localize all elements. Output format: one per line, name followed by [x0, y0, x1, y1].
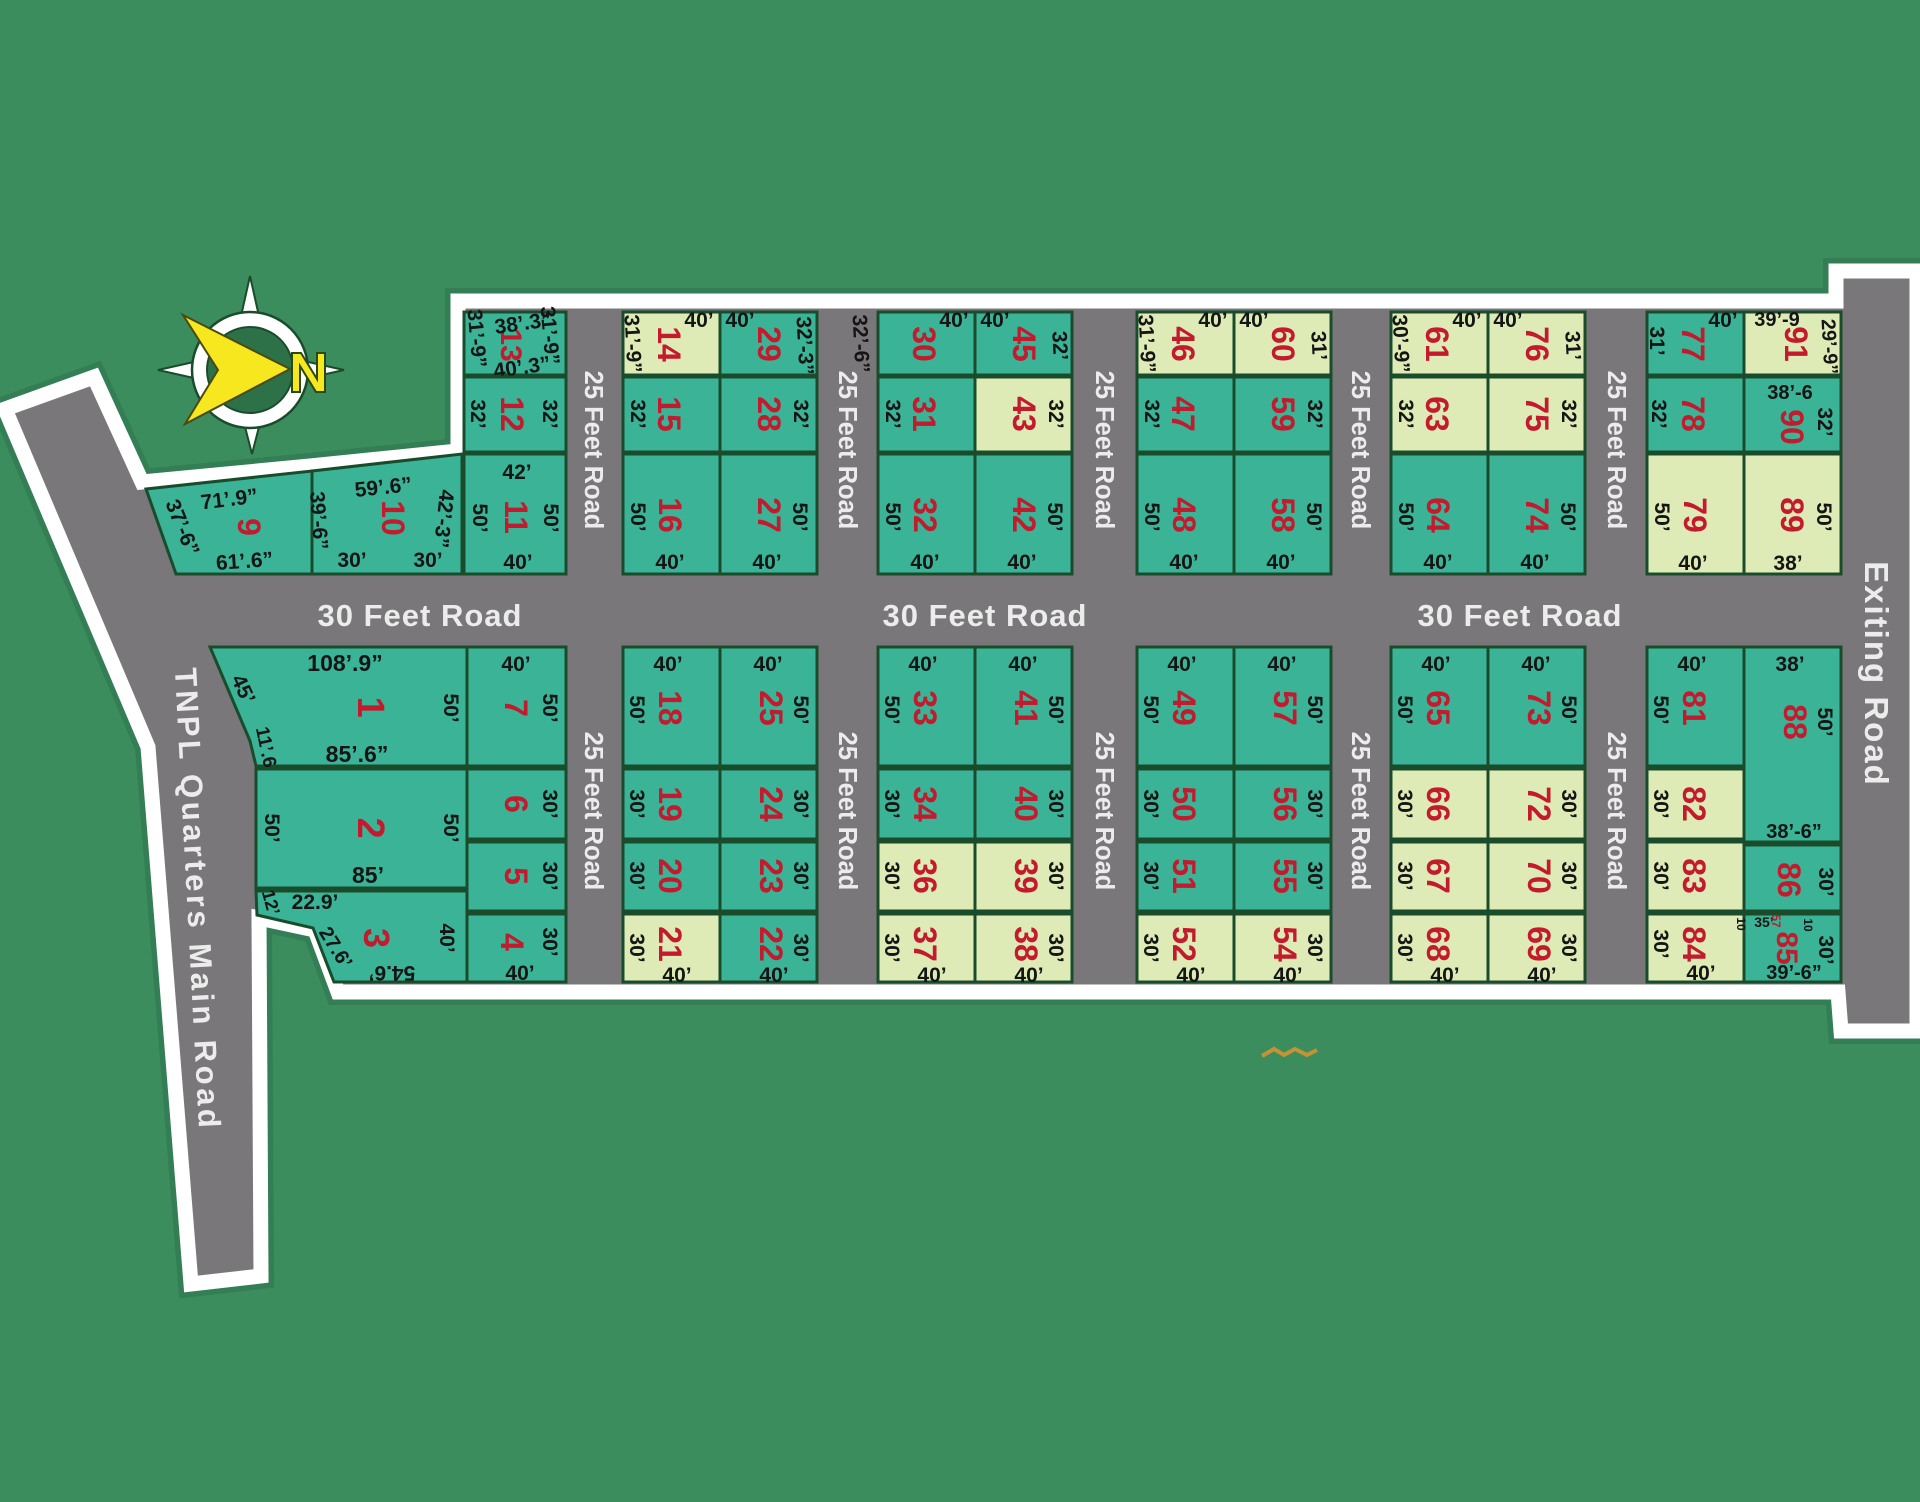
svg-text:38: 38 [1008, 926, 1044, 962]
svg-text:11: 11 [498, 500, 534, 534]
svg-text:36: 36 [907, 858, 943, 894]
svg-text:30’: 30’ [789, 861, 812, 890]
svg-text:72: 72 [1521, 786, 1557, 822]
svg-text:73: 73 [1521, 690, 1557, 726]
svg-text:32’-3”: 32’-3” [791, 316, 817, 375]
svg-text:30 Feet Road: 30 Feet Road [318, 598, 523, 633]
svg-text:32’: 32’ [881, 399, 904, 428]
svg-text:40’: 40’ [1677, 653, 1706, 676]
svg-text:50’: 50’ [625, 695, 648, 724]
svg-text:30’: 30’ [880, 933, 903, 962]
svg-text:45: 45 [1006, 326, 1042, 362]
svg-text:40’: 40’ [1708, 309, 1737, 332]
svg-text:65: 65 [1420, 690, 1456, 726]
svg-text:40’: 40’ [725, 309, 754, 332]
svg-text:50’: 50’ [260, 813, 283, 842]
svg-text:50’: 50’ [439, 813, 462, 842]
svg-text:75: 75 [1519, 396, 1555, 432]
svg-text:30’: 30’ [789, 933, 812, 962]
svg-text:50’: 50’ [1302, 502, 1325, 531]
svg-text:30’: 30’ [789, 789, 812, 818]
svg-text:63: 63 [1419, 396, 1455, 432]
svg-text:10: 10 [1801, 918, 1815, 932]
svg-text:25 Feet Road: 25 Feet Road [833, 732, 861, 891]
svg-text:85’: 85’ [352, 862, 384, 888]
svg-text:30’: 30’ [625, 933, 648, 962]
svg-text:33: 33 [907, 690, 943, 726]
svg-text:30: 30 [906, 326, 942, 362]
svg-text:40’: 40’ [910, 551, 939, 574]
svg-text:30’: 30’ [538, 789, 561, 818]
svg-text:40’: 40’ [1239, 309, 1268, 332]
svg-text:40’: 40’ [939, 309, 968, 332]
svg-text:24: 24 [753, 786, 789, 822]
svg-text:50’: 50’ [539, 503, 562, 532]
svg-text:68: 68 [1420, 926, 1456, 962]
svg-text:91: 91 [1778, 326, 1814, 362]
svg-text:50’: 50’ [626, 502, 649, 531]
svg-text:67: 67 [1420, 858, 1456, 894]
svg-text:7: 7 [498, 699, 534, 717]
svg-text:3: 3 [356, 928, 397, 948]
svg-text:40’: 40’ [1520, 551, 1549, 574]
svg-text:40’: 40’ [1430, 964, 1459, 987]
svg-text:32’: 32’ [538, 399, 561, 428]
svg-text:22.9’: 22.9’ [292, 891, 339, 914]
svg-text:50’: 50’ [789, 695, 812, 724]
svg-text:40’: 40’ [1198, 309, 1227, 332]
svg-text:38’-6”: 38’-6” [1766, 821, 1822, 843]
svg-text:30’: 30’ [1814, 935, 1837, 964]
svg-text:25 Feet Road: 25 Feet Road [1602, 732, 1630, 891]
svg-text:85’.6”: 85’.6” [326, 741, 389, 767]
svg-text:30’: 30’ [413, 549, 442, 572]
svg-text:30’: 30’ [1557, 789, 1580, 818]
svg-text:30’: 30’ [538, 927, 561, 956]
svg-text:20: 20 [652, 858, 688, 894]
svg-text:40’: 40’ [753, 653, 782, 676]
svg-text:40’: 40’ [1273, 964, 1302, 987]
svg-text:82: 82 [1676, 786, 1712, 822]
svg-text:30’: 30’ [1139, 933, 1162, 962]
svg-text:43: 43 [1006, 396, 1042, 432]
svg-text:32’: 32’ [1044, 399, 1067, 428]
svg-text:89: 89 [1774, 497, 1810, 533]
svg-text:57: 57 [1267, 690, 1303, 726]
svg-text:32’: 32’ [626, 399, 649, 428]
svg-text:38’: 38’ [1775, 653, 1804, 676]
svg-text:30’: 30’ [1393, 861, 1416, 890]
svg-text:40’: 40’ [503, 551, 532, 574]
svg-text:58: 58 [1265, 497, 1301, 533]
svg-text:2: 2 [349, 817, 391, 838]
svg-text:81: 81 [1676, 690, 1712, 726]
svg-text:40’: 40’ [684, 309, 713, 332]
svg-text:25 Feet Road: 25 Feet Road [1346, 371, 1374, 530]
svg-text:40’: 40’ [505, 962, 534, 985]
svg-text:12: 12 [494, 396, 530, 432]
svg-text:50’: 50’ [1556, 502, 1579, 531]
svg-text:41: 41 [1008, 690, 1044, 726]
svg-text:25 Feet Road: 25 Feet Road [1090, 732, 1118, 891]
svg-text:25 Feet Road: 25 Feet Road [579, 732, 607, 891]
svg-text:25 Feet Road: 25 Feet Road [1090, 371, 1118, 530]
svg-text:30’: 30’ [1393, 933, 1416, 962]
svg-text:69: 69 [1521, 926, 1557, 962]
svg-text:40’: 40’ [917, 964, 946, 987]
svg-text:60: 60 [1265, 326, 1301, 362]
svg-text:16: 16 [652, 497, 688, 533]
svg-text:32’: 32’ [1557, 399, 1580, 428]
svg-text:30’: 30’ [1557, 861, 1580, 890]
svg-text:50’: 50’ [538, 693, 561, 722]
svg-text:30’: 30’ [625, 861, 648, 890]
svg-text:50’: 50’ [468, 503, 491, 532]
svg-text:90: 90 [1774, 409, 1810, 445]
svg-text:30’: 30’ [1649, 929, 1672, 958]
svg-text:31: 31 [906, 396, 942, 432]
svg-text:32: 32 [907, 497, 943, 533]
svg-text:50’: 50’ [1303, 695, 1326, 724]
svg-text:32’: 32’ [789, 399, 812, 428]
svg-text:10: 10 [375, 500, 411, 536]
svg-text:40’: 40’ [752, 551, 781, 574]
svg-text:78: 78 [1675, 396, 1711, 432]
svg-text:30’: 30’ [1303, 933, 1326, 962]
svg-text:42’: 42’ [502, 461, 531, 484]
svg-text:31’-9”: 31’-9” [619, 314, 645, 373]
svg-text:39’-9: 39’-9 [1754, 309, 1800, 331]
svg-text:32’-6”: 32’-6” [847, 314, 873, 373]
svg-text:85: 85 [1770, 931, 1803, 964]
svg-text:30’: 30’ [1393, 789, 1416, 818]
svg-text:40’: 40’ [1007, 551, 1036, 574]
svg-text:6: 6 [498, 795, 534, 813]
svg-text:61’.6”: 61’.6” [215, 548, 274, 575]
svg-text:40’: 40’ [501, 653, 530, 676]
svg-text:22: 22 [753, 926, 789, 962]
svg-text:49: 49 [1166, 690, 1202, 726]
svg-text:50’: 50’ [881, 502, 904, 531]
svg-text:38’-6: 38’-6 [1767, 382, 1813, 404]
svg-text:19: 19 [652, 786, 688, 822]
svg-text:31’: 31’ [1306, 330, 1330, 360]
svg-text:66: 66 [1420, 786, 1456, 822]
svg-text:Exiting Road: Exiting Road [1858, 561, 1895, 787]
svg-text:40’: 40’ [1266, 551, 1295, 574]
svg-text:25: 25 [753, 690, 789, 726]
svg-text:40’: 40’ [1169, 551, 1198, 574]
svg-text:50’: 50’ [1393, 695, 1416, 724]
svg-text:40’: 40’ [1176, 964, 1205, 987]
svg-text:25 Feet Road: 25 Feet Road [1602, 371, 1630, 530]
svg-text:50’: 50’ [1394, 502, 1417, 531]
svg-text:50’: 50’ [439, 693, 462, 722]
svg-text:40’: 40’ [908, 653, 937, 676]
svg-text:52: 52 [1166, 926, 1202, 962]
svg-text:32’: 32’ [1813, 407, 1836, 436]
svg-text:77: 77 [1675, 326, 1711, 362]
svg-text:25 Feet Road: 25 Feet Road [833, 371, 861, 530]
svg-text:29’-9”: 29’-9” [1817, 318, 1842, 375]
svg-text:54.6’: 54.6’ [369, 961, 416, 984]
svg-text:30’: 30’ [1044, 861, 1067, 890]
svg-text:40’: 40’ [1493, 309, 1522, 332]
svg-text:79: 79 [1677, 497, 1713, 533]
svg-text:32’: 32’ [1047, 330, 1071, 360]
svg-text:40’: 40’ [1521, 653, 1550, 676]
svg-text:4: 4 [494, 933, 530, 951]
svg-text:30’: 30’ [1303, 861, 1326, 890]
svg-text:25 Feet Road: 25 Feet Road [1346, 732, 1374, 891]
svg-text:29: 29 [751, 326, 787, 362]
svg-text:30’-9”: 30’-9” [1387, 314, 1413, 373]
svg-text:32’: 32’ [1647, 399, 1670, 428]
svg-text:64: 64 [1420, 497, 1456, 533]
svg-text:34: 34 [907, 786, 943, 822]
svg-text:83: 83 [1676, 858, 1712, 894]
svg-text:86: 86 [1771, 862, 1807, 898]
svg-text:40’: 40’ [1423, 551, 1452, 574]
svg-text:30’: 30’ [880, 861, 903, 890]
svg-text:30’: 30’ [880, 789, 903, 818]
svg-text:55: 55 [1267, 858, 1303, 894]
svg-text:40’: 40’ [1678, 552, 1707, 575]
svg-text:23: 23 [753, 858, 789, 894]
svg-text:40’: 40’ [1452, 309, 1481, 332]
svg-text:1: 1 [349, 696, 391, 717]
svg-text:50’: 50’ [1649, 695, 1672, 724]
svg-text:31’: 31’ [1645, 326, 1668, 355]
svg-text:40’: 40’ [1527, 964, 1556, 987]
svg-text:40’: 40’ [662, 964, 691, 987]
svg-text:30’: 30’ [1044, 789, 1067, 818]
svg-text:50’: 50’ [1140, 502, 1163, 531]
svg-text:74: 74 [1519, 497, 1555, 533]
svg-text:30’: 30’ [625, 789, 648, 818]
svg-text:25 Feet Road: 25 Feet Road [579, 371, 607, 530]
svg-text:39: 39 [1008, 858, 1044, 894]
svg-text:40’: 40’ [759, 964, 788, 987]
svg-text:37: 37 [907, 926, 943, 962]
svg-text:40’: 40’ [653, 653, 682, 676]
svg-text:50’: 50’ [1557, 695, 1580, 724]
svg-text:14: 14 [651, 326, 687, 362]
svg-text:40’: 40’ [1167, 653, 1196, 676]
svg-text:21: 21 [652, 926, 688, 962]
svg-text:50’: 50’ [880, 695, 903, 724]
svg-text:42: 42 [1006, 497, 1042, 533]
svg-text:50’: 50’ [1650, 502, 1673, 531]
svg-text:30’: 30’ [538, 861, 561, 890]
svg-text:50’: 50’ [1812, 502, 1835, 531]
svg-text:30’: 30’ [1303, 789, 1326, 818]
svg-text:30’: 30’ [1139, 861, 1162, 890]
svg-text:27: 27 [751, 497, 787, 533]
svg-text:30’: 30’ [1044, 933, 1067, 962]
svg-text:32’: 32’ [1140, 399, 1163, 428]
svg-text:88: 88 [1777, 704, 1813, 740]
svg-text:46: 46 [1165, 326, 1201, 362]
svg-text:39’-6”: 39’-6” [305, 491, 332, 551]
svg-text:30’: 30’ [1814, 867, 1837, 896]
svg-text:30’: 30’ [1557, 933, 1580, 962]
svg-text:61: 61 [1419, 326, 1455, 362]
svg-text:40’: 40’ [1686, 962, 1715, 985]
svg-text:40’: 40’ [1421, 653, 1450, 676]
svg-text:30’: 30’ [1139, 789, 1162, 818]
svg-text:15: 15 [651, 396, 687, 432]
svg-text:70: 70 [1521, 858, 1557, 894]
svg-text:108’.9”: 108’.9” [307, 650, 382, 676]
svg-text:50’: 50’ [1813, 707, 1836, 736]
svg-text:59: 59 [1265, 396, 1301, 432]
svg-text:50’: 50’ [1044, 695, 1067, 724]
svg-text:9: 9 [231, 518, 267, 536]
svg-text:40’: 40’ [980, 309, 1009, 332]
svg-text:54: 54 [1267, 926, 1303, 962]
svg-text:50’: 50’ [1043, 502, 1066, 531]
svg-text:48: 48 [1166, 497, 1202, 533]
svg-text:30’: 30’ [337, 549, 366, 572]
svg-text:84: 84 [1676, 926, 1712, 962]
svg-text:38’: 38’ [1773, 552, 1802, 575]
svg-text:51: 51 [1166, 858, 1202, 894]
svg-text:39’-6”: 39’-6” [1766, 962, 1822, 984]
svg-text:32’: 32’ [1394, 399, 1417, 428]
svg-text:40: 40 [1008, 786, 1044, 822]
svg-text:30’: 30’ [1649, 861, 1672, 890]
svg-text:40’: 40’ [1008, 653, 1037, 676]
svg-text:32’: 32’ [466, 399, 489, 428]
svg-text:40’: 40’ [1267, 653, 1296, 676]
svg-text:50’: 50’ [1139, 695, 1162, 724]
svg-text:40’: 40’ [1014, 964, 1043, 987]
svg-text:76: 76 [1519, 326, 1555, 362]
svg-text:30 Feet Road: 30 Feet Road [883, 598, 1088, 633]
svg-text:57: 57 [1769, 914, 1783, 928]
svg-text:30’: 30’ [1649, 789, 1672, 818]
svg-text:5: 5 [498, 867, 534, 885]
svg-text:18: 18 [652, 690, 688, 726]
svg-text:28: 28 [751, 396, 787, 432]
svg-text:40’: 40’ [435, 923, 458, 952]
svg-text:56: 56 [1267, 786, 1303, 822]
svg-text:40’: 40’ [655, 551, 684, 574]
svg-text:32’: 32’ [1303, 399, 1326, 428]
svg-text:47: 47 [1165, 396, 1201, 432]
svg-text:10: 10 [1734, 917, 1748, 931]
svg-text:30 Feet Road: 30 Feet Road [1418, 598, 1623, 633]
svg-text:31’: 31’ [1560, 330, 1584, 360]
svg-text:31’-9”: 31’-9” [1133, 314, 1159, 373]
svg-text:50: 50 [1166, 786, 1202, 822]
svg-text:50’: 50’ [788, 502, 811, 531]
